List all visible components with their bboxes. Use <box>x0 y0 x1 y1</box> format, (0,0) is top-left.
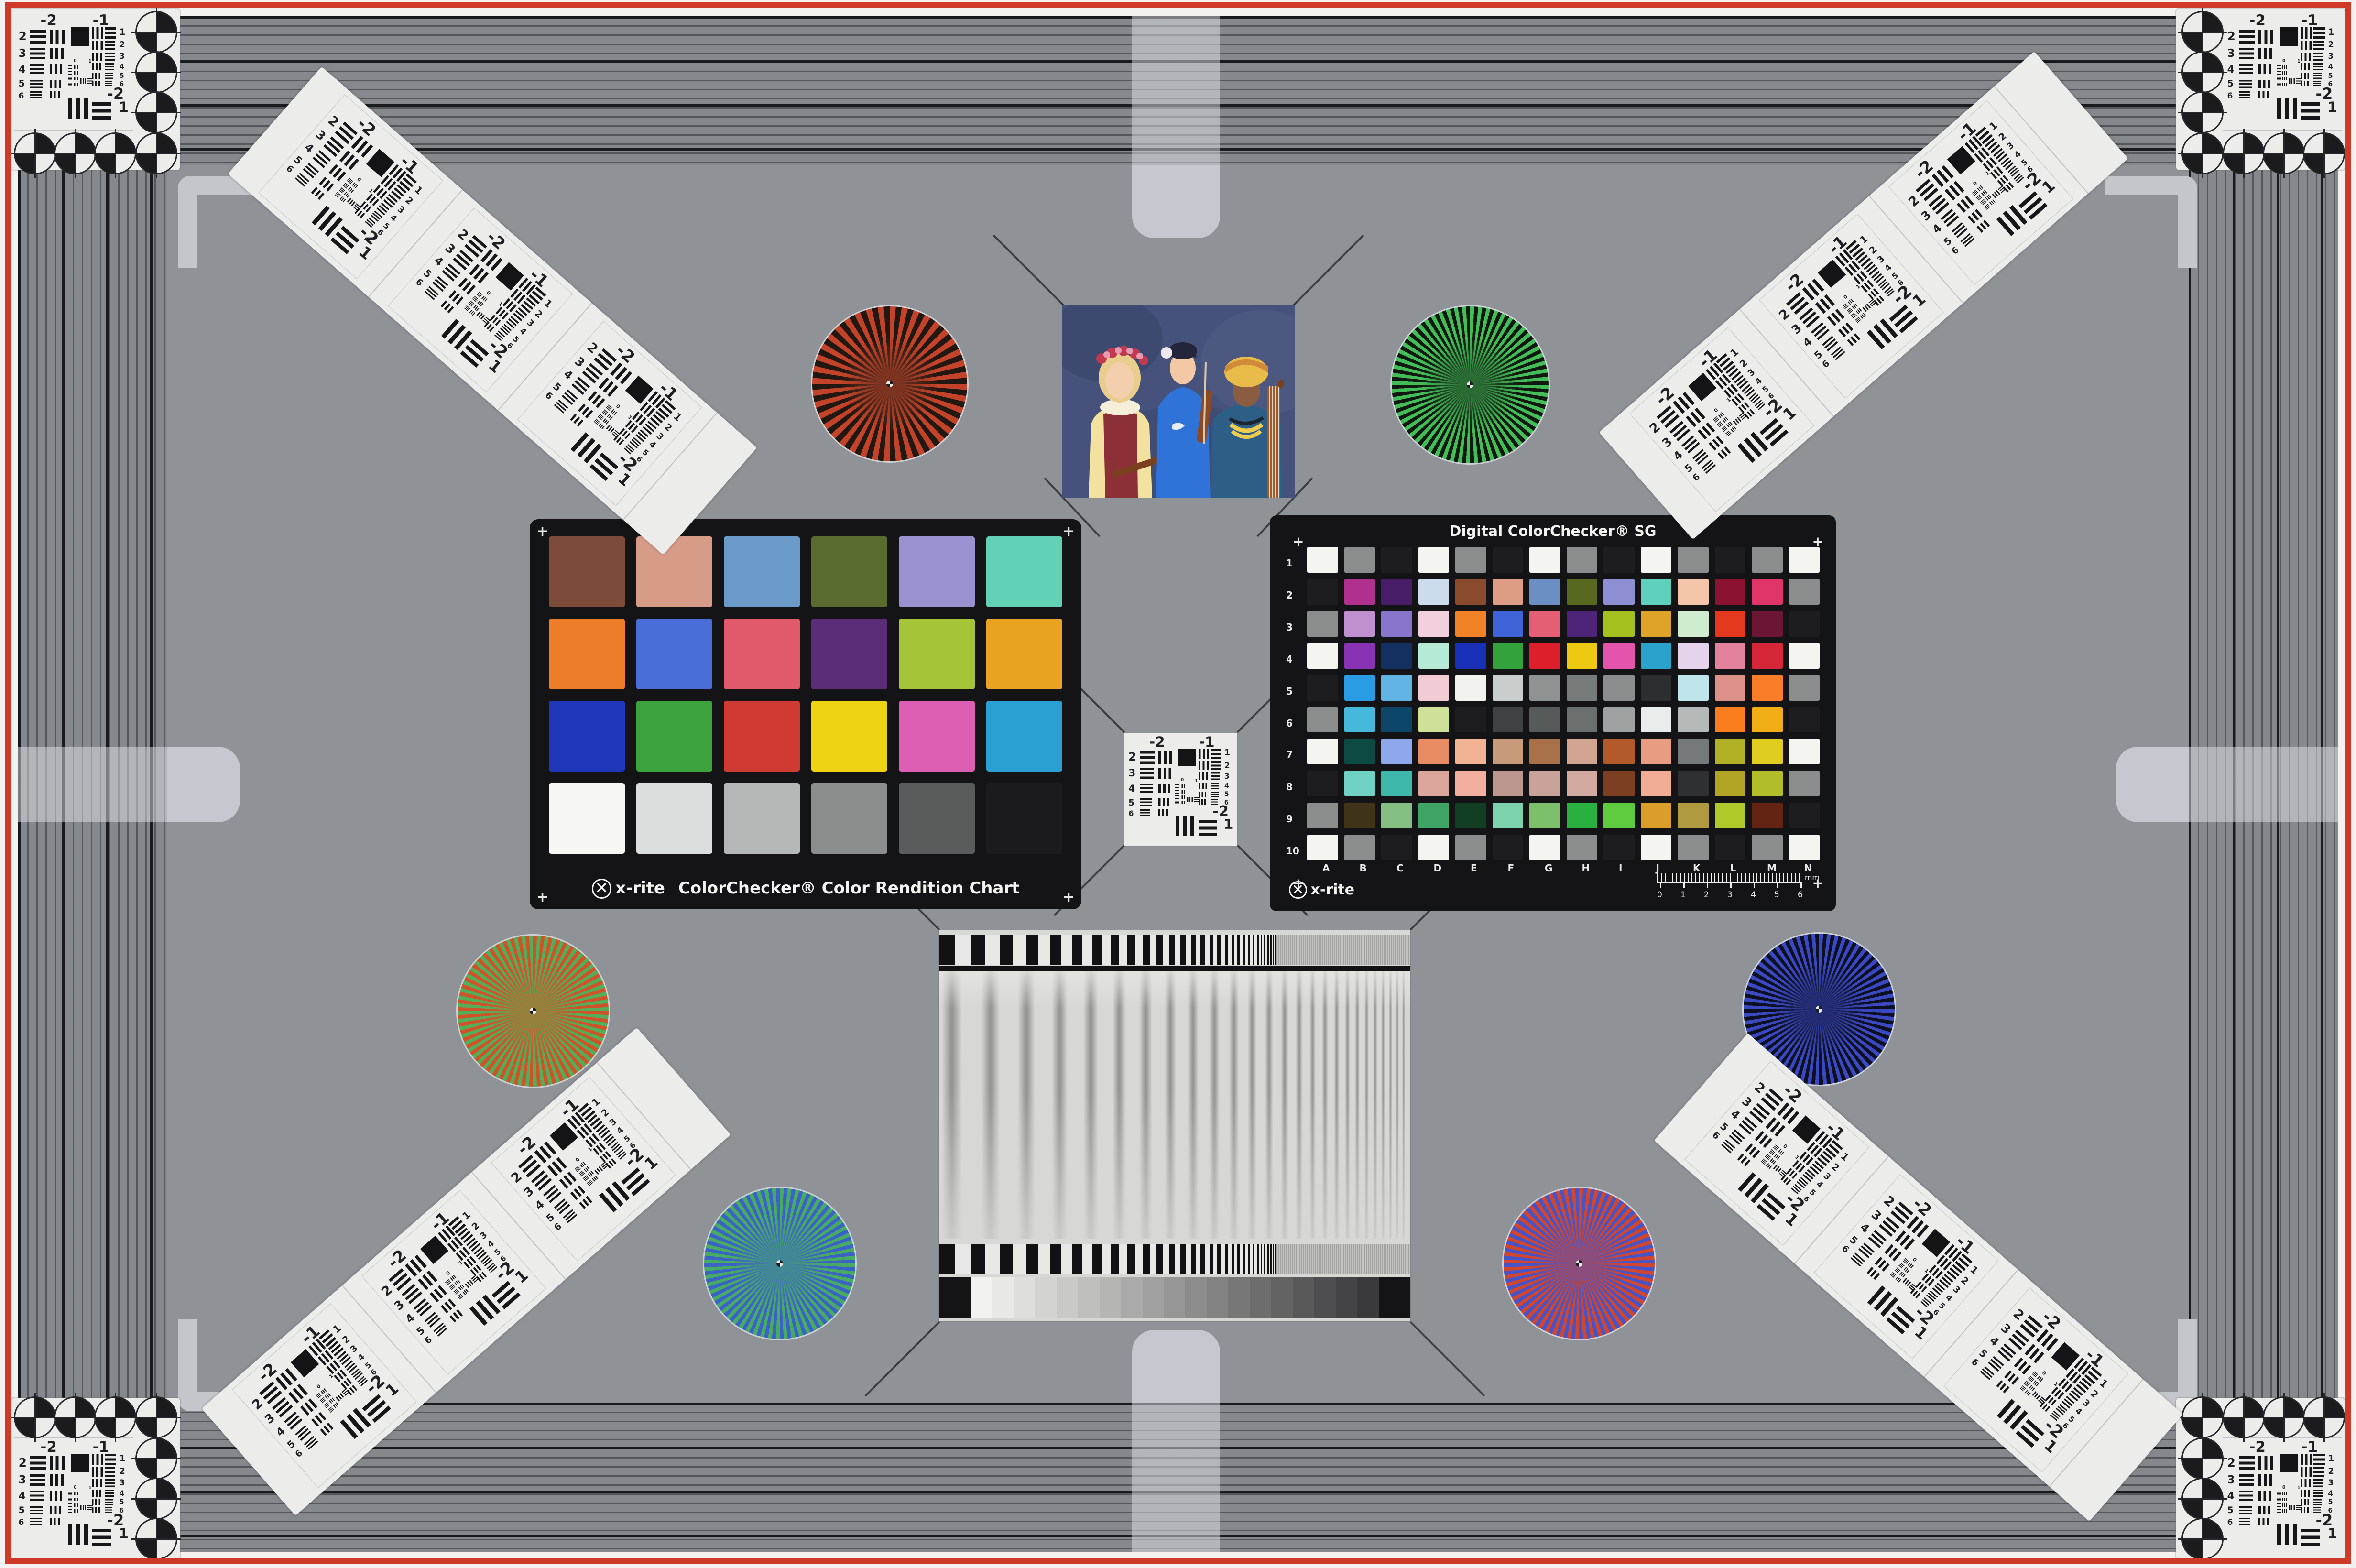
red-border-frame <box>5 2 2351 1564</box>
camera-test-chart: x-rite ColorChecker® Color Rendition Cha… <box>0 0 2356 1568</box>
